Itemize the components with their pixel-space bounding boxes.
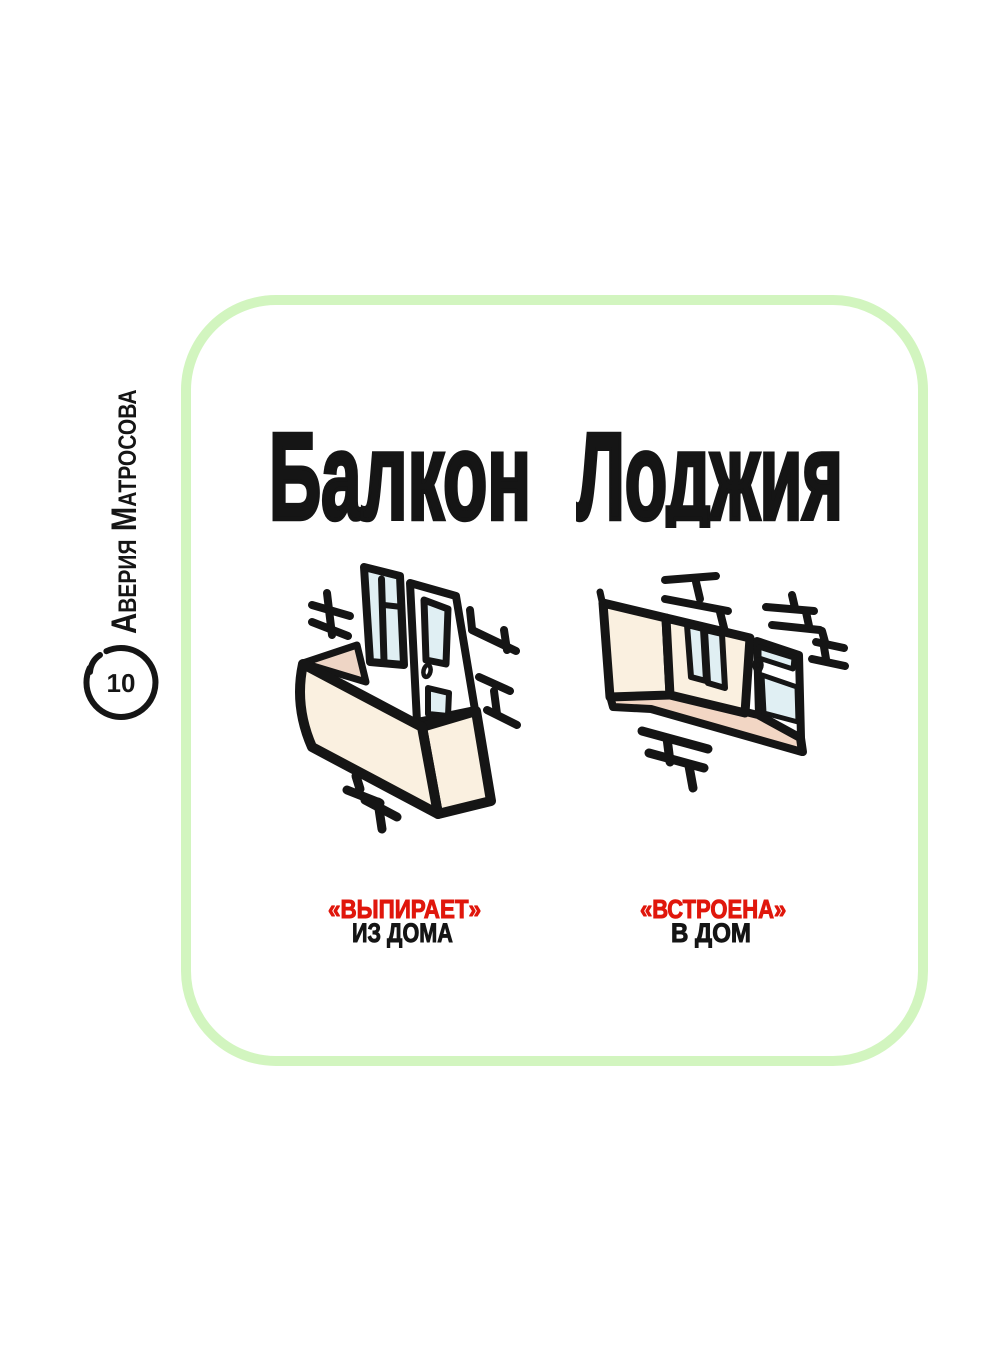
svg-text:10: 10 <box>107 668 136 698</box>
